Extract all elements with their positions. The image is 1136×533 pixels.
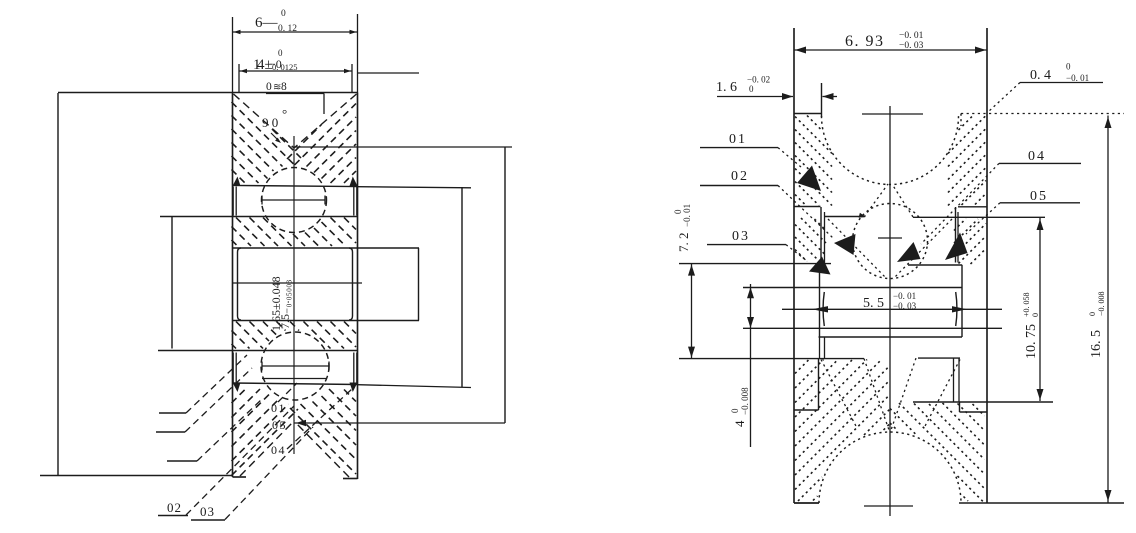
svg-text:0: 0 [278, 48, 283, 58]
svg-text:16. 5: 16. 5 [1089, 330, 1104, 358]
svg-text:0: 0 [730, 408, 740, 413]
svg-text:01: 01 [729, 132, 747, 147]
svg-text:−0. 03: −0. 03 [899, 41, 924, 51]
svg-text:6—: 6— [255, 15, 279, 31]
svg-text:0. 12: 0. 12 [278, 24, 297, 34]
svg-text:0. 0125: 0. 0125 [272, 62, 298, 72]
svg-text:−0. 01: −0. 01 [1066, 73, 1089, 83]
svg-text:04: 04 [1028, 149, 1046, 164]
svg-text:−0. 03: −0. 03 [893, 301, 917, 311]
svg-text:6. 93: 6. 93 [845, 33, 885, 50]
svg-text:°: ° [282, 106, 287, 121]
svg-text:05: 05 [1030, 189, 1048, 204]
svg-text:03: 03 [732, 229, 750, 244]
svg-text:7. 2: 7. 2 [676, 233, 691, 253]
svg-text:02: 02 [167, 500, 182, 515]
svg-text:1. 6: 1. 6 [716, 80, 737, 95]
svg-text:0: 0 [1031, 313, 1040, 317]
svg-text:−0. 008: −0. 008 [740, 387, 750, 415]
svg-text:0: 0 [281, 9, 286, 19]
svg-text:0: 0 [749, 84, 754, 94]
svg-text:0: 0 [1088, 312, 1097, 316]
svg-text:0: 0 [1066, 62, 1071, 72]
svg-text:−0. 01: −0. 01 [682, 204, 692, 227]
svg-text:+0. 058: +0. 058 [1022, 292, 1031, 317]
svg-text:5. 5: 5. 5 [863, 296, 884, 311]
svg-text:10. 75: 10. 75 [1024, 324, 1039, 359]
svg-text:03: 03 [200, 504, 215, 519]
svg-text:0: 0 [266, 81, 272, 93]
svg-text:02: 02 [731, 169, 749, 184]
svg-text:−0. 008: −0. 008 [1097, 291, 1106, 316]
svg-text:8: 8 [281, 81, 287, 93]
svg-text:−0. 01: −0. 01 [893, 291, 916, 301]
svg-text:4: 4 [732, 420, 747, 427]
svg-text:−0. 01: −0. 01 [899, 31, 924, 41]
svg-text:0. 4: 0. 4 [1030, 68, 1051, 83]
svg-text:7.5₋₀.₀₅₀₀₃: 7.5₋₀.₀₅₀₀₃ [278, 280, 292, 329]
svg-text:−0. 02: −0. 02 [747, 75, 770, 85]
svg-text:04: 04 [271, 443, 286, 457]
